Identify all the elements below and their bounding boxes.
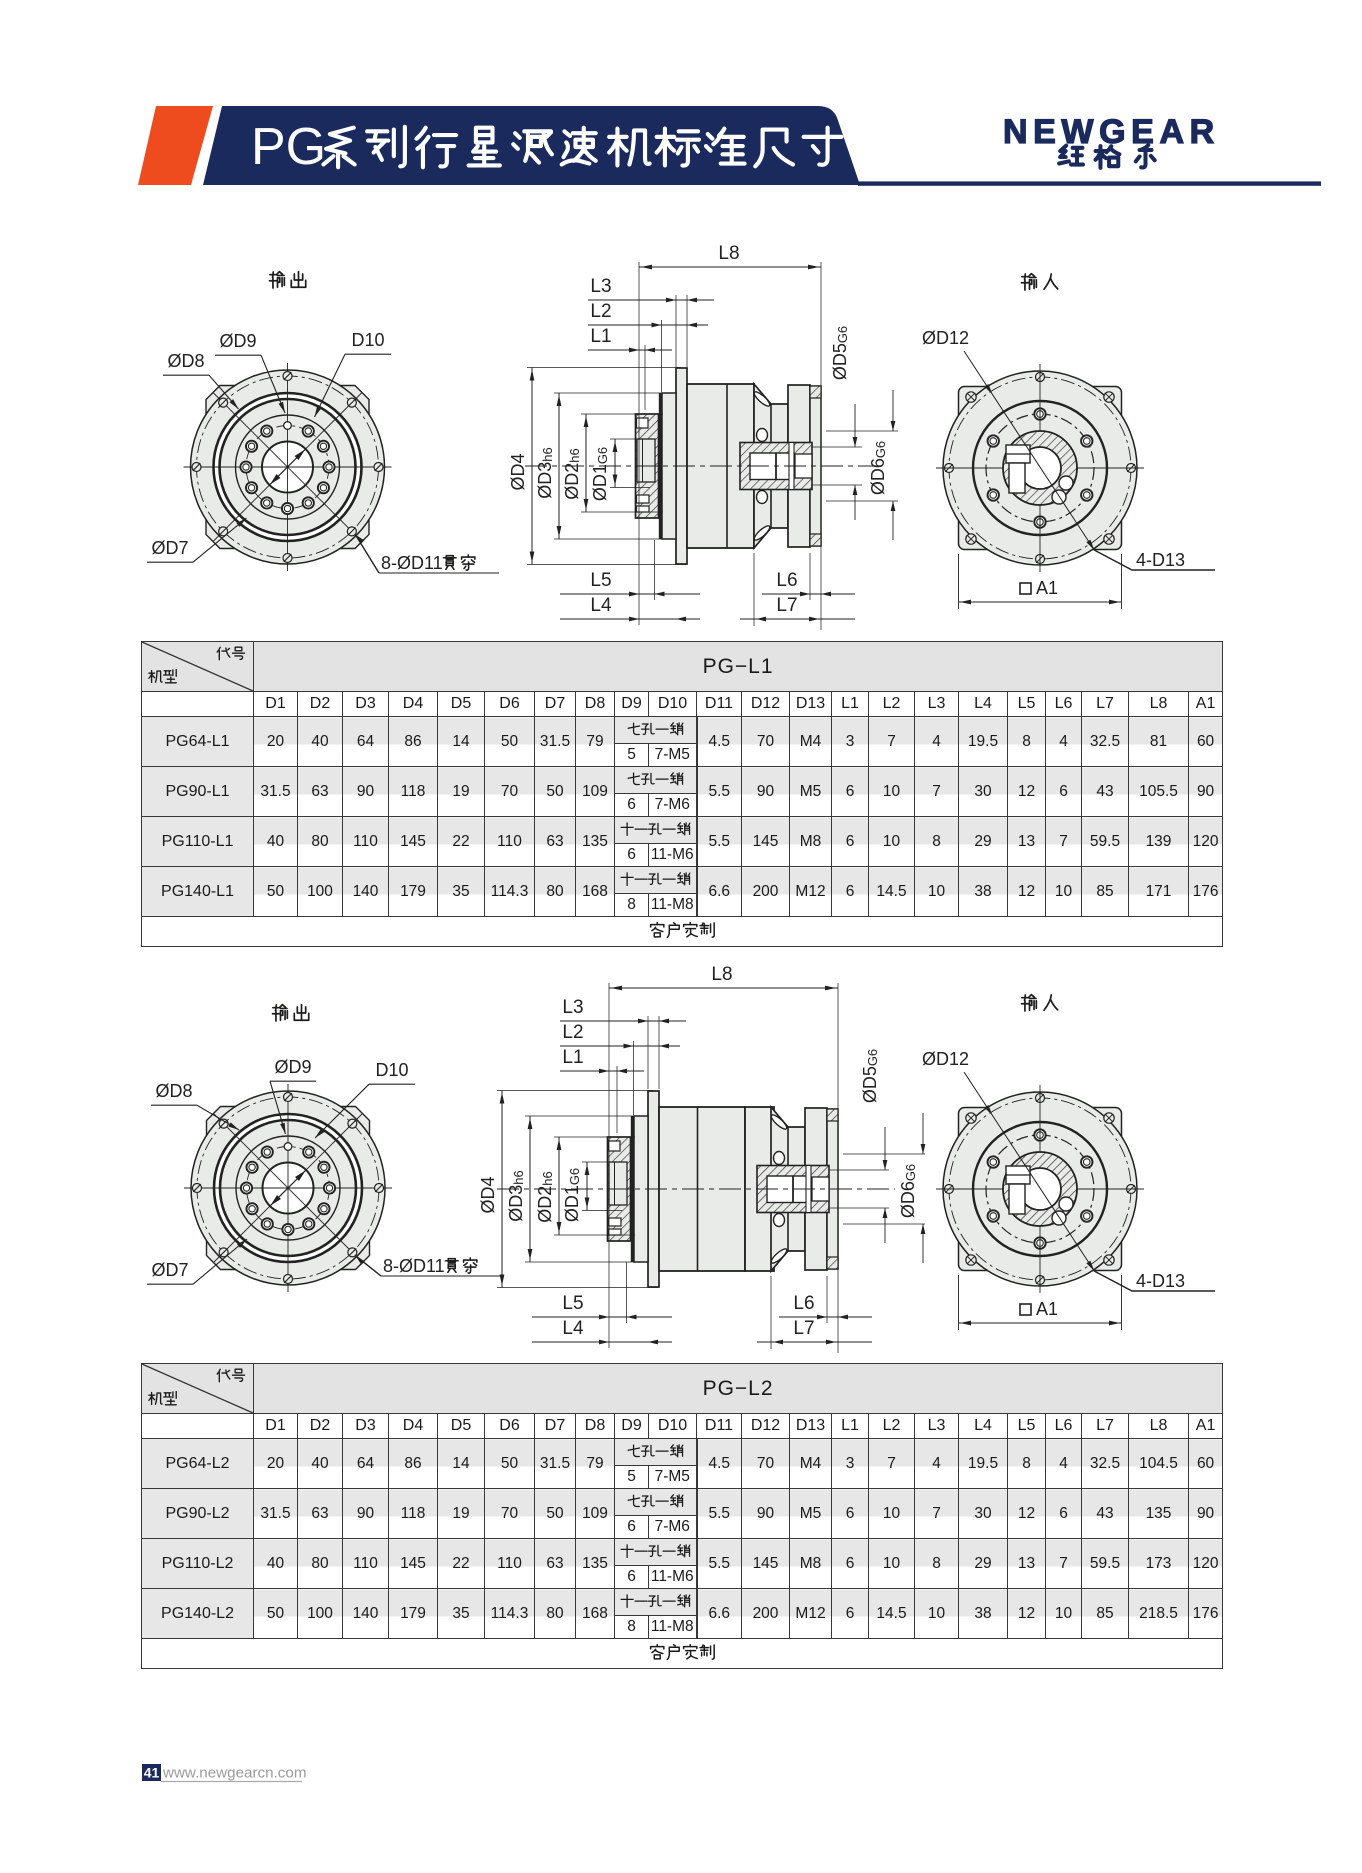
svg-text:L6: L6 [793,1293,814,1314]
svg-text:ØD2h6: ØD2h6 [535,1171,555,1222]
svg-text:L4: L4 [562,1318,584,1339]
svg-text:ØD5G6: ØD5G6 [860,1049,880,1103]
svg-text:ØD4: ØD4 [478,1176,498,1213]
svg-text:ØD1G6: ØD1G6 [590,447,610,501]
svg-text:L6: L6 [776,570,797,591]
svg-text:ØD12: ØD12 [922,328,969,348]
svg-text:L3: L3 [562,997,583,1018]
svg-text:ØD3h6: ØD3h6 [506,1170,526,1221]
svg-text:L7: L7 [793,1318,814,1339]
svg-text:ØD7: ØD7 [151,538,188,558]
svg-text:L1: L1 [562,1047,583,1068]
svg-text:ØD2h6: ØD2h6 [562,448,582,499]
svg-text:ØD8: ØD8 [155,1081,192,1101]
svg-text:L5: L5 [562,1293,583,1314]
svg-text:L3: L3 [590,276,611,297]
svg-text:ØD6G6: ØD6G6 [868,441,888,495]
svg-text:L2: L2 [562,1022,583,1043]
svg-text:ØD12: ØD12 [922,1049,969,1069]
svg-text:L4: L4 [590,595,612,616]
svg-text:A1: A1 [1036,578,1058,598]
svg-text:D10: D10 [375,1060,408,1080]
svg-text:D10: D10 [351,330,384,350]
svg-text:L5: L5 [590,570,611,591]
svg-text:A1: A1 [1036,1299,1058,1319]
svg-text:ØD1G6: ØD1G6 [562,1168,582,1222]
svg-text:4-D13: 4-D13 [1136,1271,1185,1291]
svg-text:L8: L8 [711,964,732,985]
svg-text:ØD9: ØD9 [219,331,256,351]
svg-text:ØD9: ØD9 [274,1057,311,1077]
svg-text:ØD8: ØD8 [167,351,204,371]
svg-text:ØD5G6: ØD5G6 [830,326,850,380]
svg-text:L8: L8 [718,243,739,264]
svg-text:L7: L7 [776,595,797,616]
svg-text:www.newgearcn.com: www.newgearcn.com [162,1765,307,1782]
svg-text:41: 41 [144,1765,160,1781]
svg-text:ØD4: ØD4 [508,453,528,490]
svg-text:8-ØD11: 8-ØD11 [383,1256,445,1276]
svg-text:L1: L1 [590,326,611,347]
svg-text:8-ØD11: 8-ØD11 [381,553,443,573]
svg-text:L2: L2 [590,301,611,322]
svg-text:ØD3h6: ØD3h6 [535,447,555,498]
svg-text:4-D13: 4-D13 [1136,550,1185,570]
svg-text:ØD6G6: ØD6G6 [898,1164,918,1218]
svg-text:PG: PG [251,118,326,176]
svg-text:ØD7: ØD7 [151,1260,188,1280]
